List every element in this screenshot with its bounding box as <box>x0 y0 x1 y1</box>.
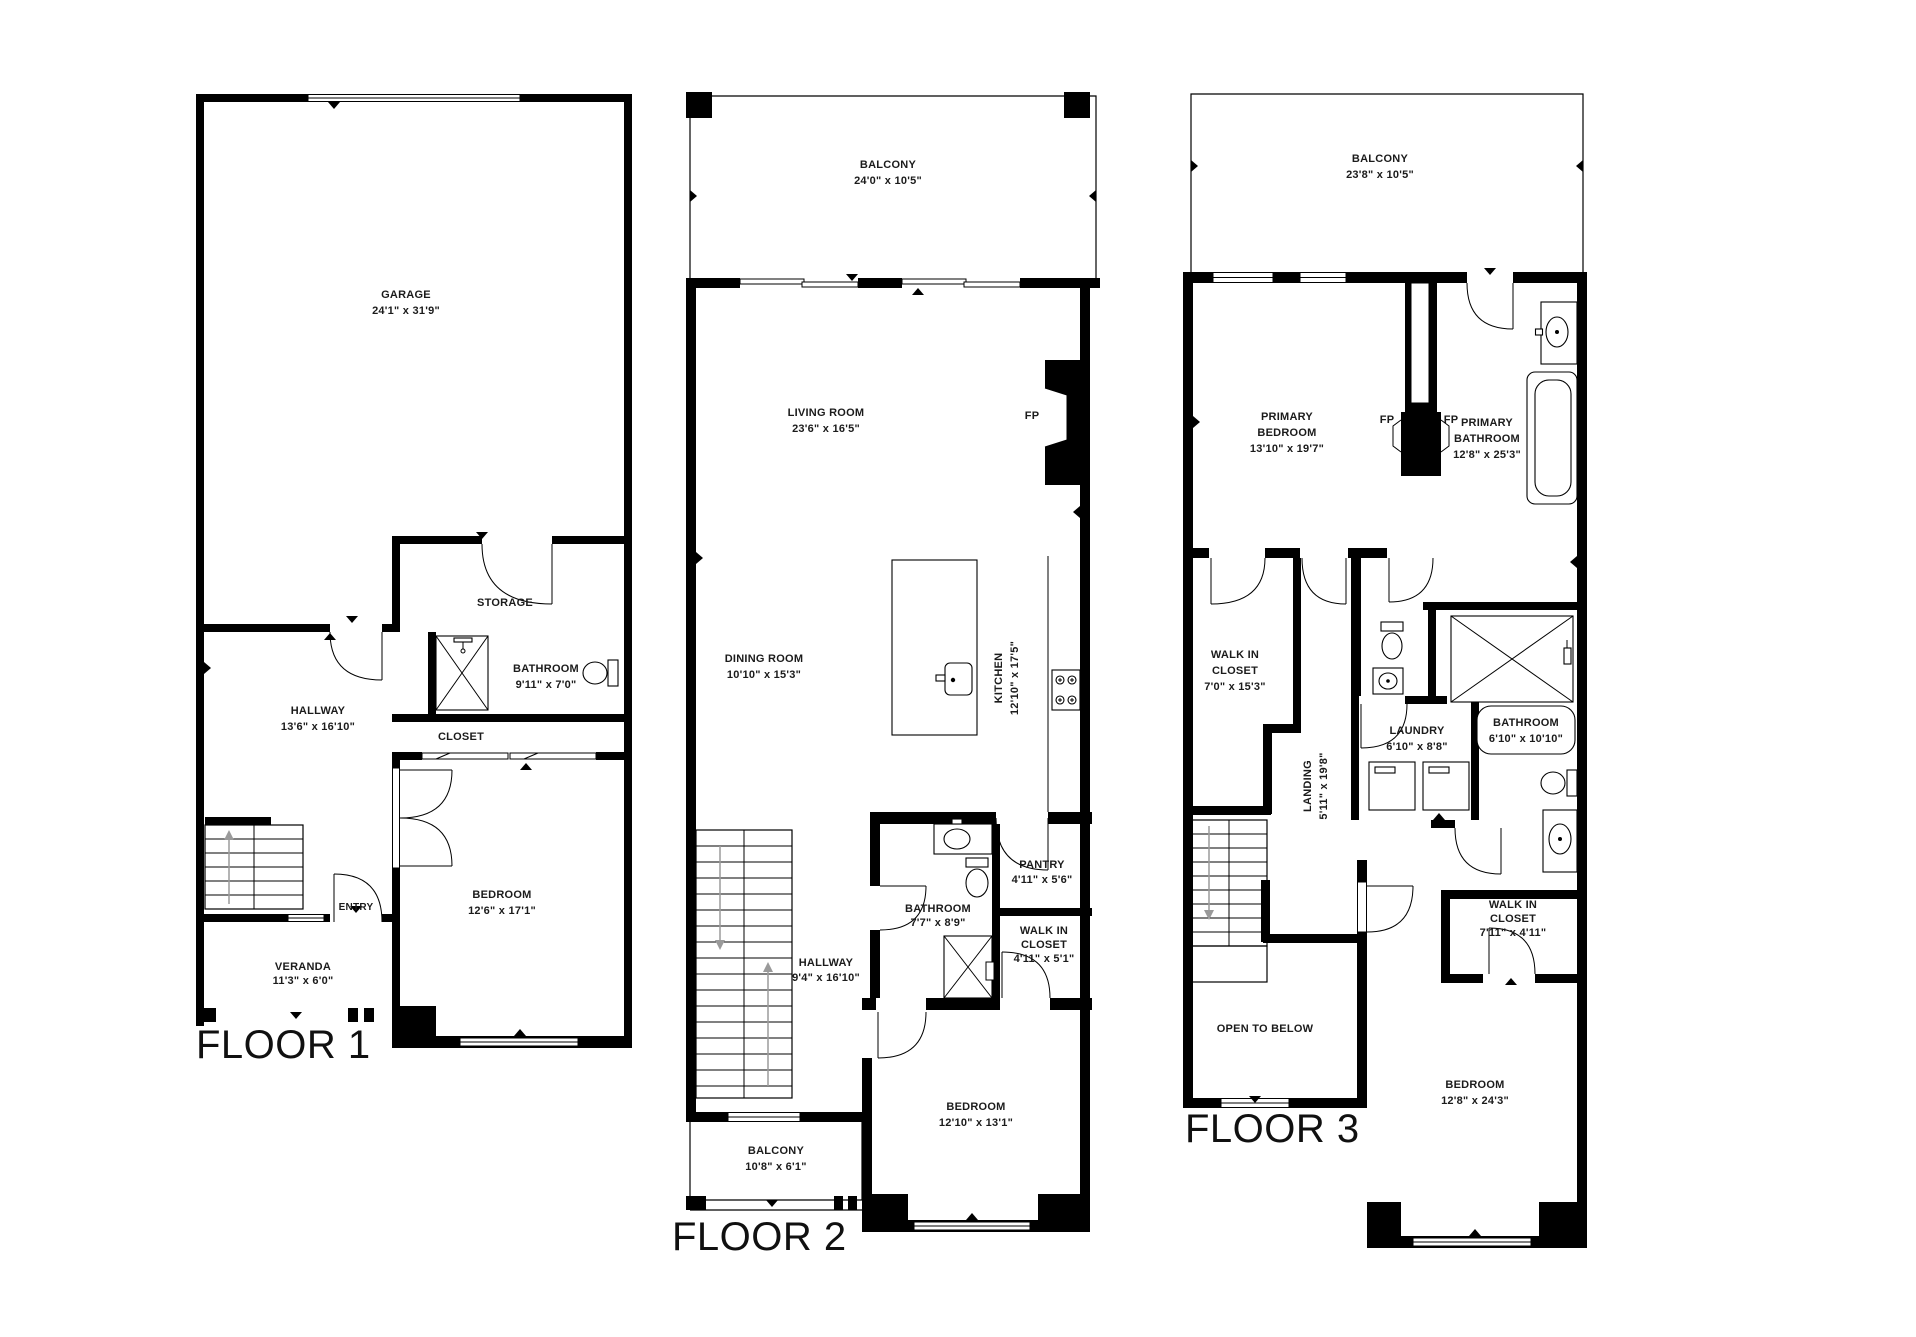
room-label-storage: STORAGE <box>477 597 533 609</box>
door-icon <box>330 632 382 680</box>
dryer-icon <box>1423 762 1469 810</box>
door-icon <box>482 544 552 604</box>
room-dims-living-room: 23'6" x 16'5" <box>792 423 860 435</box>
label-fireplace-left: FP <box>1380 414 1395 426</box>
room-label-bedroom: BEDROOM <box>946 1101 1005 1113</box>
floor-1-title: FLOOR 1 <box>196 1023 371 1067</box>
room-label-bedroom: BEDROOM <box>472 889 531 901</box>
room-label-wic-bottom: WALK IN <box>1489 899 1537 911</box>
door-icon <box>1467 283 1513 329</box>
room-dims-laundry: 6'10" x 8'8" <box>1386 741 1447 753</box>
shower-icon <box>436 636 488 710</box>
room-label-living-room: LIVING ROOM <box>788 407 865 419</box>
room-label-balcony-bottom: BALCONY <box>748 1145 805 1157</box>
door-icon <box>1358 882 1414 932</box>
linen-closet-icon <box>944 936 994 998</box>
room-label-landing: LANDING <box>1302 760 1314 812</box>
sink-icon <box>1373 668 1403 694</box>
stairs <box>696 830 792 1098</box>
floor2-labels: BALCONY 24'0" x 10'5" LIVING ROOM 23'6" … <box>672 159 1074 1259</box>
window-icon <box>1213 273 1273 283</box>
door-icon <box>1455 828 1501 874</box>
room-dims-dining-room: 10'10" x 15'3" <box>727 669 801 681</box>
room-dims-bedroom: 12'6" x 17'1" <box>468 905 536 917</box>
floor-1-plan: GARAGE 24'1" x 31'9" STORAGE HALLWAY 13'… <box>196 86 632 1076</box>
bathroom-label-box <box>1477 706 1575 754</box>
stair-direction-arrow <box>1204 826 1214 920</box>
window-icon <box>1413 1238 1531 1246</box>
room-dims-garage: 24'1" x 31'9" <box>372 305 440 317</box>
room-label-kitchen: KITCHEN <box>993 653 1005 704</box>
room-dims-primary-bedroom: 13'10" x 19'7" <box>1250 443 1324 455</box>
window-icon <box>914 1222 1030 1230</box>
room-label-dining-room: DINING ROOM <box>725 653 804 665</box>
room-label-garage: GARAGE <box>381 289 431 301</box>
stairs <box>205 825 303 909</box>
room-label-wic-top2: CLOSET <box>1212 665 1258 677</box>
room-label-primary-bedroom2: BEDROOM <box>1257 427 1316 439</box>
room-label-primary-bathroom2: BATHROOM <box>1454 433 1520 445</box>
room-dims-wic-bottom: 7'11" x 4'11" <box>1480 927 1547 939</box>
door-icon <box>1211 558 1265 604</box>
stair-direction-arrow <box>763 962 773 1086</box>
room-label-laundry: LAUNDRY <box>1389 725 1445 737</box>
room-dims-wic-top: 7'0" x 15'3" <box>1204 681 1265 693</box>
room-dims-balcony-top: 24'0" x 10'5" <box>854 175 922 187</box>
floor2-markers <box>696 274 1080 1220</box>
window-icon <box>1300 273 1346 283</box>
room-dims-balcony: 23'8" x 10'5" <box>1346 169 1414 181</box>
stairs <box>1191 820 1267 982</box>
room-label-hallway: HALLWAY <box>799 957 854 969</box>
room-dims-primary-bathroom: 12'8" x 25'3" <box>1453 449 1521 461</box>
toilet-icon <box>1381 622 1403 659</box>
floor2-openings <box>728 278 1050 1230</box>
sink-vanity-icon <box>934 819 992 854</box>
room-label-veranda: VERANDA <box>275 961 331 973</box>
floor1-labels: GARAGE 24'1" x 31'9" STORAGE HALLWAY 13'… <box>196 289 579 1067</box>
toilet-icon <box>583 660 618 686</box>
label-fireplace-right: FP <box>1444 414 1459 426</box>
label-fireplace: FP <box>1025 410 1040 422</box>
room-dims-bedroom: 12'8" x 24'3" <box>1441 1095 1509 1107</box>
room-dims-hallway: 9'4" x 16'10" <box>792 972 860 984</box>
door-icon <box>1302 558 1346 604</box>
floor-3-title: FLOOR 3 <box>1185 1107 1360 1151</box>
room-label-primary-bedroom: PRIMARY <box>1261 411 1313 423</box>
room-dims-bathroom: 9'11" x 7'0" <box>516 679 577 691</box>
room-label-bathroom: BATHROOM <box>905 903 971 915</box>
room-label-wic-top: WALK IN <box>1211 649 1259 661</box>
room-dims-pantry: 4'11" x 5'6" <box>1012 874 1073 886</box>
room-label-primary-bathroom: PRIMARY <box>1461 417 1513 429</box>
bathtub-icon <box>1527 372 1577 504</box>
door-icon <box>878 1012 926 1058</box>
stove-icon <box>1052 670 1080 710</box>
window-icon <box>728 1113 800 1122</box>
room-label-walk-in-closet2: CLOSET <box>1021 939 1067 951</box>
room-label-closet: CLOSET <box>438 731 484 743</box>
window-icon <box>308 95 520 102</box>
label-open-to-below: OPEN TO BELOW <box>1217 1023 1314 1035</box>
floor-3-plan: BALCONY 23'8" x 10'5" PRIMARY BEDROOM 13… <box>1183 86 1587 1271</box>
sink-vanity-icon <box>1536 302 1578 364</box>
room-dims-bathroom: 6'10" x 10'10" <box>1489 733 1563 745</box>
floor3-balcony-rail <box>1191 94 1583 272</box>
room-dims-hallway: 13'6" x 16'10" <box>281 721 355 733</box>
room-label-entry: ENTRY <box>339 902 374 913</box>
room-dims-bathroom: 7'7" x 8'9" <box>910 917 965 929</box>
room-label-bathroom: BATHROOM <box>1493 717 1559 729</box>
room-label-wic-bottom2: CLOSET <box>1490 913 1536 925</box>
shower-icon <box>1451 616 1573 702</box>
toilet-icon <box>966 858 988 897</box>
window-icon <box>288 915 324 922</box>
sink-vanity-icon <box>1543 810 1577 872</box>
room-label-bathroom: BATHROOM <box>513 663 579 675</box>
kitchen-island-icon <box>892 560 977 735</box>
french-doors-icon <box>393 768 453 868</box>
room-dims-veranda: 11'3" x 6'0" <box>273 975 334 987</box>
toilet-icon <box>1541 770 1577 796</box>
room-label-walk-in-closet: WALK IN <box>1020 925 1068 937</box>
room-dims-bedroom: 12'10" x 13'1" <box>939 1117 1013 1129</box>
room-dims-walk-in-closet: 4'11" x 5'1" <box>1014 953 1075 965</box>
floor-2-plan: BALCONY 24'0" x 10'5" LIVING ROOM 23'6" … <box>686 86 1100 1296</box>
floor1-walls <box>196 94 632 1048</box>
room-label-bedroom: BEDROOM <box>1445 1079 1504 1091</box>
floorplan-canvas: GARAGE 24'1" x 31'9" STORAGE HALLWAY 13'… <box>0 0 1916 1337</box>
floor-2-title: FLOOR 2 <box>672 1215 847 1259</box>
fireplace-icon <box>1045 388 1067 447</box>
bifold-door-icon <box>422 753 596 759</box>
room-dims-landing: 5'11" x 19'8" <box>1318 752 1330 819</box>
room-label-hallway: HALLWAY <box>291 705 346 717</box>
room-label-balcony-top: BALCONY <box>860 159 917 171</box>
room-dims-kitchen: 12'10" x 17'5" <box>1009 641 1021 715</box>
window-icon <box>460 1038 578 1046</box>
room-label-pantry: PANTRY <box>1019 859 1065 871</box>
room-label-balcony: BALCONY <box>1352 153 1409 165</box>
door-icon <box>1389 558 1433 602</box>
room-dims-balcony-bottom: 10'8" x 6'1" <box>745 1161 806 1173</box>
washer-icon <box>1369 762 1415 810</box>
